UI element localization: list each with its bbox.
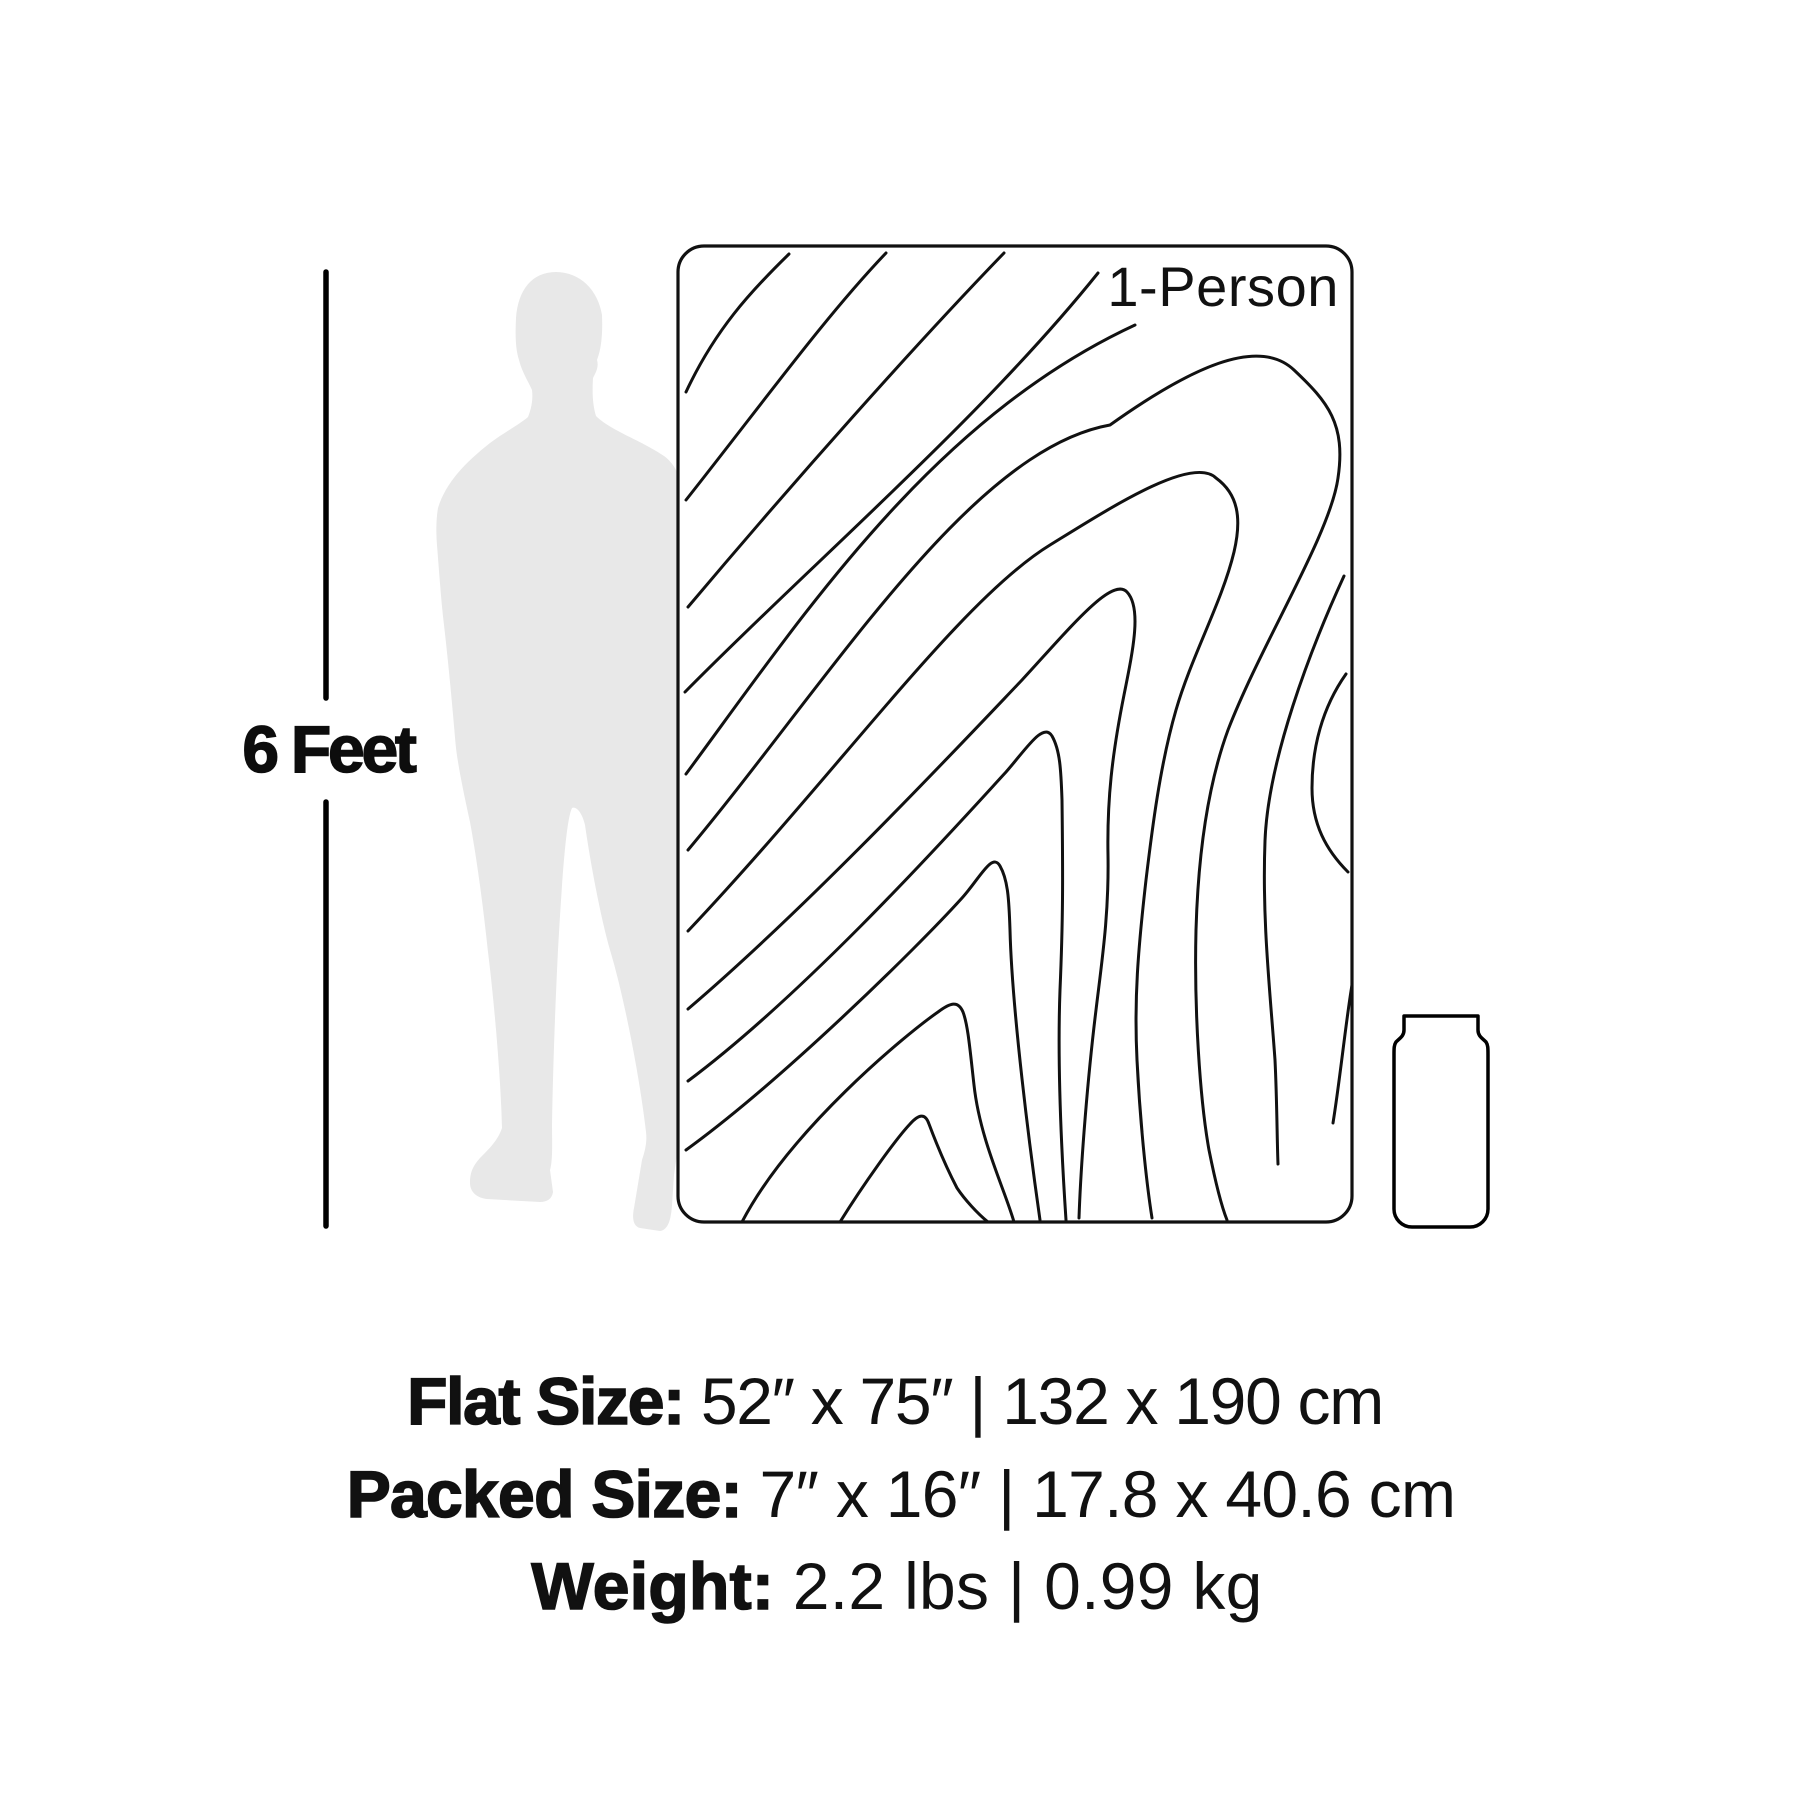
svg-text:1-Person: 1-Person [1107,255,1339,318]
svg-text:6 Feet: 6 Feet [242,712,417,786]
svg-text:Packed Size: 7″ x 16″ | 17.8 x: Packed Size: 7″ x 16″ | 17.8 x 40.6 cm [347,1457,1456,1531]
svg-text:Weight: 2.2 lbs | 0.99 kg: Weight: 2.2 lbs | 0.99 kg [531,1549,1262,1623]
svg-text:Flat Size: 52″ x 75″ | 132 x 1: Flat Size: 52″ x 75″ | 132 x 190 cm [407,1364,1383,1438]
